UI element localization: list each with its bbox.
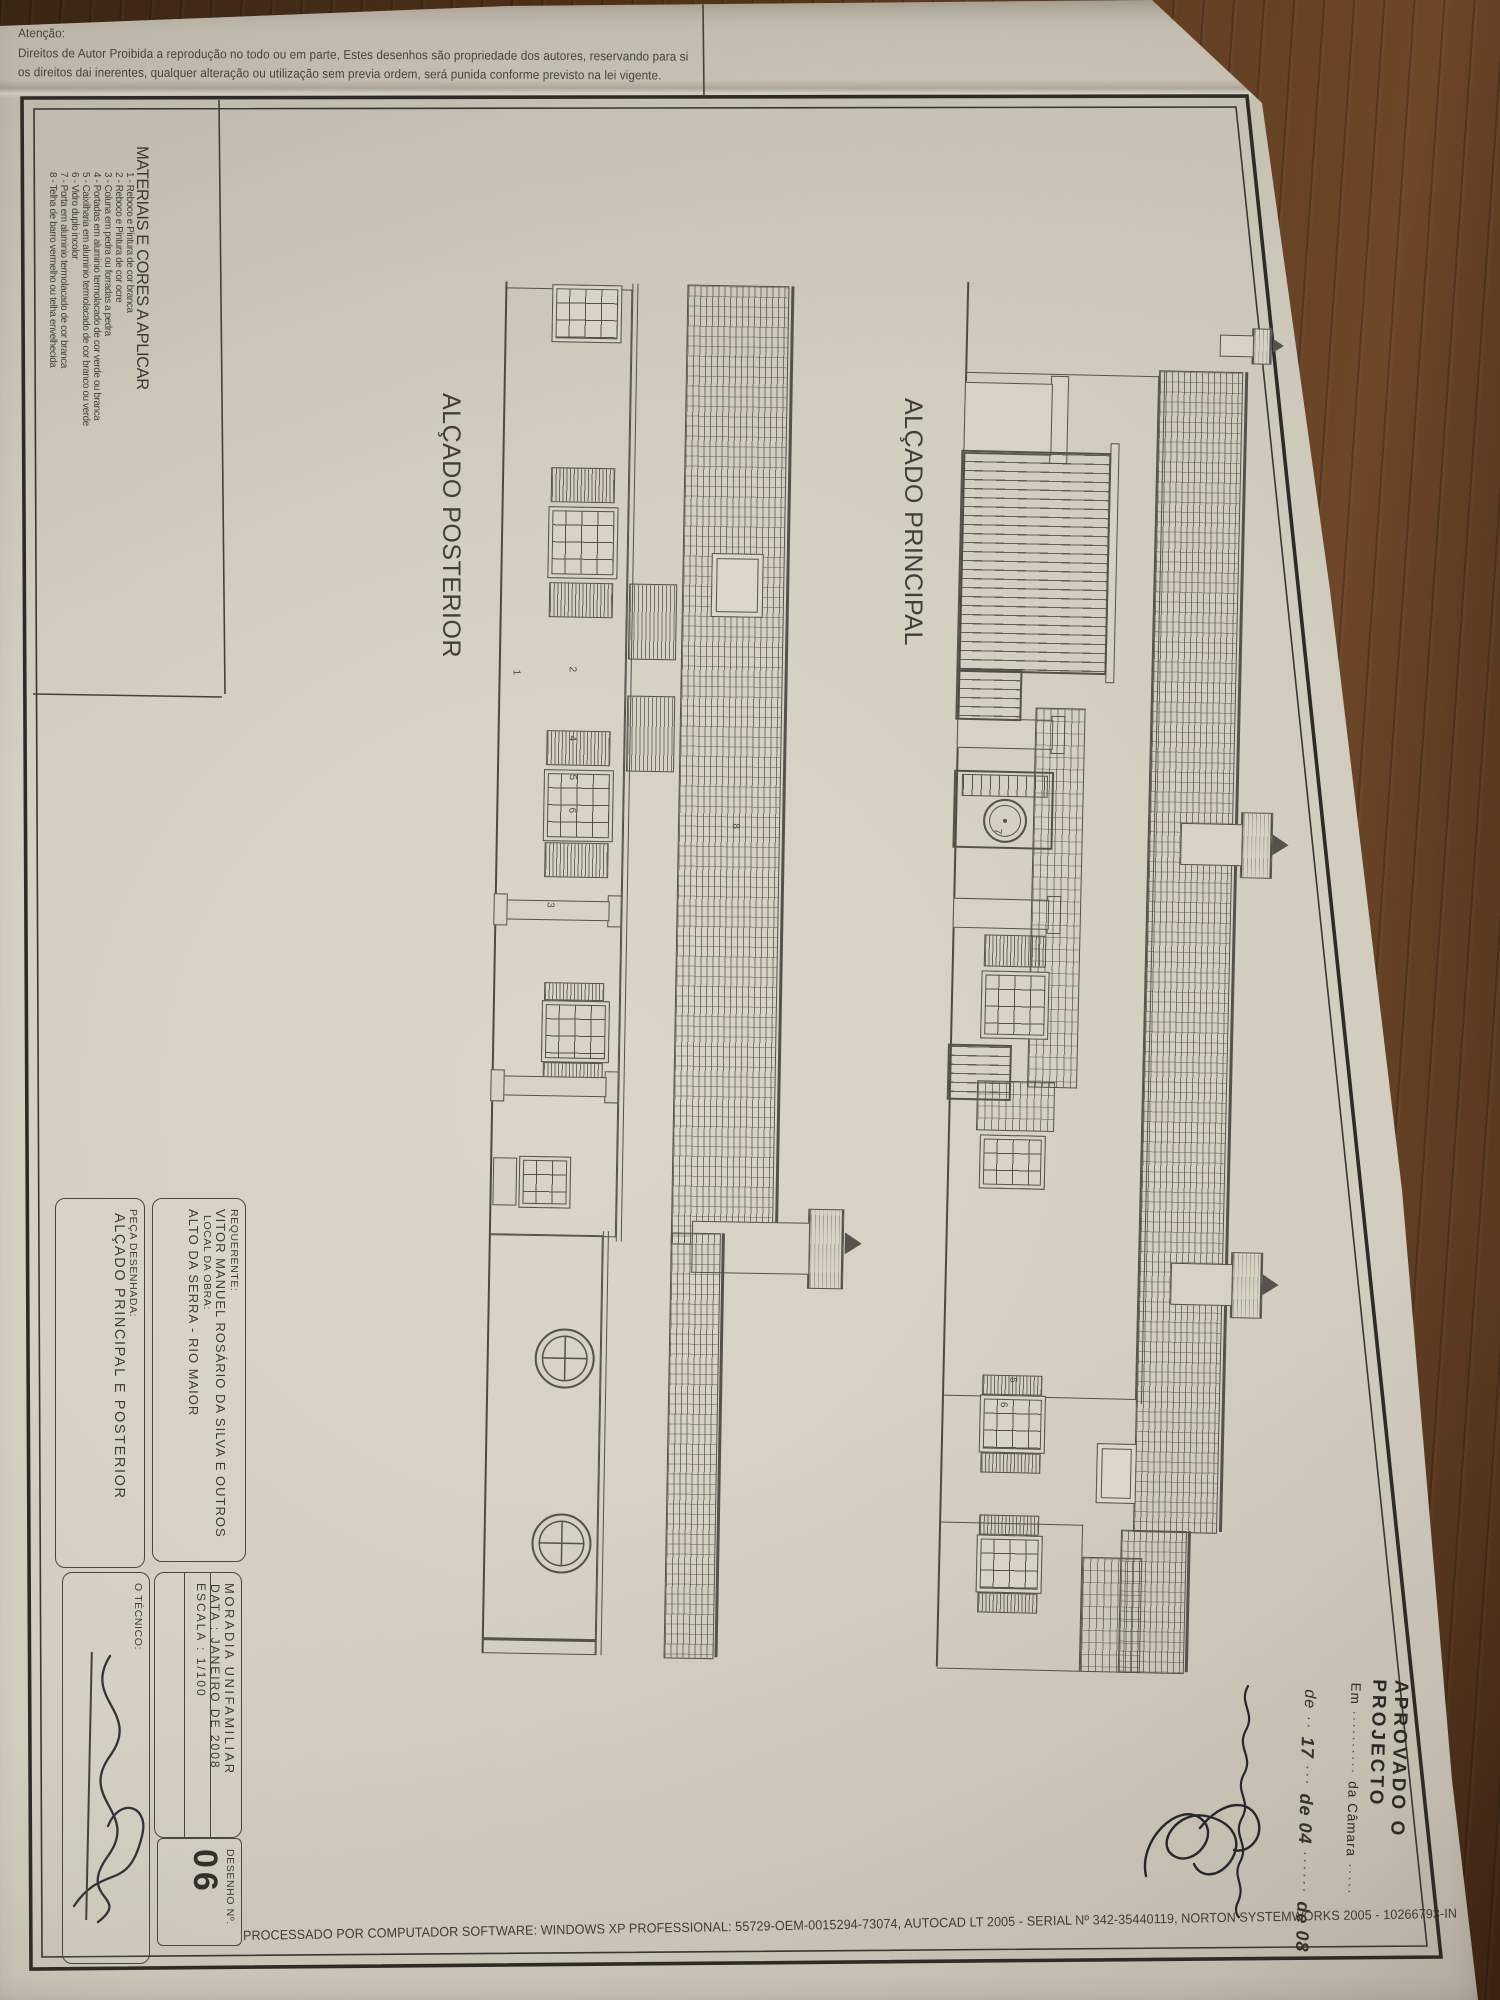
chimney-finial	[1261, 1274, 1278, 1296]
materials-list: 1 - Reboco e Pintura de cor branca 2 - R…	[42, 172, 134, 732]
vent-shaft	[1220, 335, 1254, 358]
callout-5: 5	[567, 774, 578, 780]
chimney-finial	[845, 1232, 862, 1254]
window-shutter	[979, 1514, 1039, 1535]
material-item-7: 7 - Porta em aluminio termolacado de cor…	[57, 172, 68, 732]
stamp-dots: ··········	[1346, 1705, 1363, 1782]
callout-4: 4	[566, 735, 577, 741]
posterior-elevation-title: ALÇADO POSTERIOR	[436, 393, 465, 658]
local-obra-value: ALTO DA SERRA - RIO MAIOR	[186, 1209, 201, 1551]
wing-roof-band	[663, 1232, 720, 1659]
window-shutter	[546, 730, 611, 766]
posterior-elevation-drawing: 1 2 4 5 6 3 8	[476, 281, 885, 1660]
stone-column	[503, 899, 609, 921]
material-item-5: 5 - Caixilharia em aluminio termolacado …	[79, 172, 90, 732]
chimney-cap	[1230, 1252, 1263, 1319]
material-item-6: 6 - Vidro duplo incolor	[68, 172, 79, 732]
window-shutter	[977, 1592, 1037, 1613]
titleblock-divider	[184, 1573, 185, 1837]
callout-2: 2	[567, 666, 578, 672]
stamp-dots: ·····	[1343, 1857, 1359, 1896]
window-shutter	[544, 842, 609, 878]
fence-panel	[955, 668, 1022, 721]
titleblock-moradia-box: MORADIA UNIFAMILIAR DATA : JANEIRO DE 20…	[154, 1572, 242, 1838]
stamp-dots: ··	[1300, 1709, 1318, 1737]
window	[541, 1000, 610, 1063]
chimney-cap	[1240, 812, 1273, 879]
material-item-3: 3 - Coluna em pedra ou forradas a pedra	[101, 172, 112, 732]
window	[543, 769, 614, 842]
stamp-day: 17	[1297, 1736, 1318, 1759]
window	[518, 1156, 571, 1209]
window	[547, 506, 618, 579]
door-sidelight	[962, 774, 1048, 798]
stamp-dots: ···	[1298, 1758, 1316, 1793]
material-item-8: 8 - Telha de barro vermelho ou telha env…	[46, 172, 57, 732]
garage-gate	[956, 450, 1111, 675]
vent-cap	[1251, 328, 1272, 364]
peca-label: PEÇA DESENHADA:	[127, 1209, 139, 1557]
stone-pilaster	[976, 1080, 1055, 1132]
chimney-cap	[807, 1209, 844, 1290]
chimney-shaft	[1180, 823, 1243, 866]
stamp-dots: ······	[1295, 1844, 1314, 1901]
notice-line2: os direitos dai inerentes, qualquer alte…	[18, 63, 669, 86]
chimney-shaft	[1170, 1263, 1233, 1306]
desenho-text: DESENHO Nº. 06	[185, 1849, 236, 1935]
window-shutter	[984, 934, 1047, 967]
moradia-text: MORADIA UNIFAMILIAR DATA : JANEIRO DE 20…	[194, 1583, 237, 1827]
callout-8: 8	[730, 823, 741, 829]
callout-6: 6	[566, 807, 577, 813]
requerente-label: REQUERENTE:	[228, 1209, 240, 1551]
requerente-value: VITOR MANUEL ROSÁRIO DA SILVA E OUTROS	[213, 1209, 228, 1551]
stamp-line2: Em ·········· da Câmara ·····	[1343, 1682, 1364, 1895]
principal-elevation-title: ALÇADO PRINCIPAL	[898, 398, 927, 646]
column-base	[490, 1069, 505, 1101]
wing-wall	[483, 1233, 603, 1655]
stone-column	[500, 1075, 606, 1097]
gate-pier	[963, 382, 1053, 456]
requerente-text: REQUERENTE: VITOR MANUEL ROSÁRIO DA SILV…	[186, 1209, 240, 1551]
materials-box-right-line	[219, 100, 225, 694]
principal-elevation-drawing: 7 5 6	[930, 282, 1311, 1675]
material-item-1: 1 - Reboco e Pintura de cor branca	[123, 172, 134, 732]
material-item-2: 2 - Reboco e Pintura de cor ocre	[112, 172, 123, 732]
window-shutter	[551, 467, 616, 503]
titleblock-tecnico-box: O TÉCNICO:	[62, 1572, 150, 1964]
peca-text: PEÇA DESENHADA: ALÇADO PRINCIPAL E POSTE…	[111, 1209, 139, 1557]
stamp-month: de 04	[1295, 1793, 1316, 1845]
roof-tile-band	[671, 285, 790, 1247]
window	[979, 1134, 1046, 1189]
small-window	[1096, 1443, 1137, 1504]
window	[976, 1534, 1043, 1593]
copyright-notice: Atenção: Direitos de Autor Proibida a re…	[18, 24, 718, 86]
escala-value: ESCALA : 1/100	[194, 1583, 208, 1827]
local-obra-label: LOCAL DA OBRA:	[201, 1215, 213, 1551]
vent-finial	[1273, 339, 1284, 353]
wall-panel	[492, 1157, 517, 1205]
peca-value: ALÇADO PRINCIPAL E POSTERIOR	[111, 1213, 127, 1557]
tecnico-label: O TÉCNICO:	[132, 1583, 144, 1953]
chimney-finial	[1271, 834, 1288, 856]
eave-vent	[626, 696, 675, 773]
titleblock-desenho-box: DESENHO Nº. 06	[157, 1838, 242, 1946]
titleblock-peca-box: PEÇA DESENHADA: ALÇADO PRINCIPAL E POSTE…	[55, 1198, 145, 1568]
stamp-camara: da Câmara	[1344, 1781, 1361, 1857]
stamp-em: Em	[1348, 1682, 1364, 1705]
window-shutter	[980, 1452, 1040, 1473]
window	[551, 284, 622, 343]
material-item-4: 4 - Portadas em aluminio termolacado de …	[90, 172, 101, 732]
callout-5: 5	[1007, 1377, 1018, 1383]
stamp-de1: de	[1301, 1689, 1319, 1709]
data-value: DATA : JANEIRO DE 2008	[208, 1584, 222, 1827]
desenho-label: DESENHO Nº.	[224, 1849, 236, 1935]
window	[979, 1394, 1046, 1453]
window-shutter	[544, 982, 604, 1001]
desenho-numero: 06	[185, 1849, 224, 1935]
tecnico-text: O TÉCNICO:	[132, 1583, 144, 1953]
callout-3: 3	[545, 902, 556, 908]
callout-6: 6	[998, 1402, 1009, 1408]
moradia-title: MORADIA UNIFAMILIAR	[222, 1583, 237, 1827]
column-base	[493, 893, 508, 925]
eave-vent	[628, 584, 677, 661]
window	[980, 970, 1050, 1040]
window-shutter	[549, 582, 614, 618]
photo-of-architectural-drawing: Atenção: Direitos de Autor Proibida a re…	[0, 0, 1500, 2000]
callout-1: 1	[511, 669, 522, 675]
roof-skylight	[711, 553, 764, 618]
callout-7: 7	[992, 829, 1003, 835]
titleblock-requerente-box: REQUERENTE: VITOR MANUEL ROSÁRIO DA SILV…	[152, 1198, 246, 1562]
drawing-sheet: Atenção: Direitos de Autor Proibida a re…	[0, 0, 1500, 2000]
